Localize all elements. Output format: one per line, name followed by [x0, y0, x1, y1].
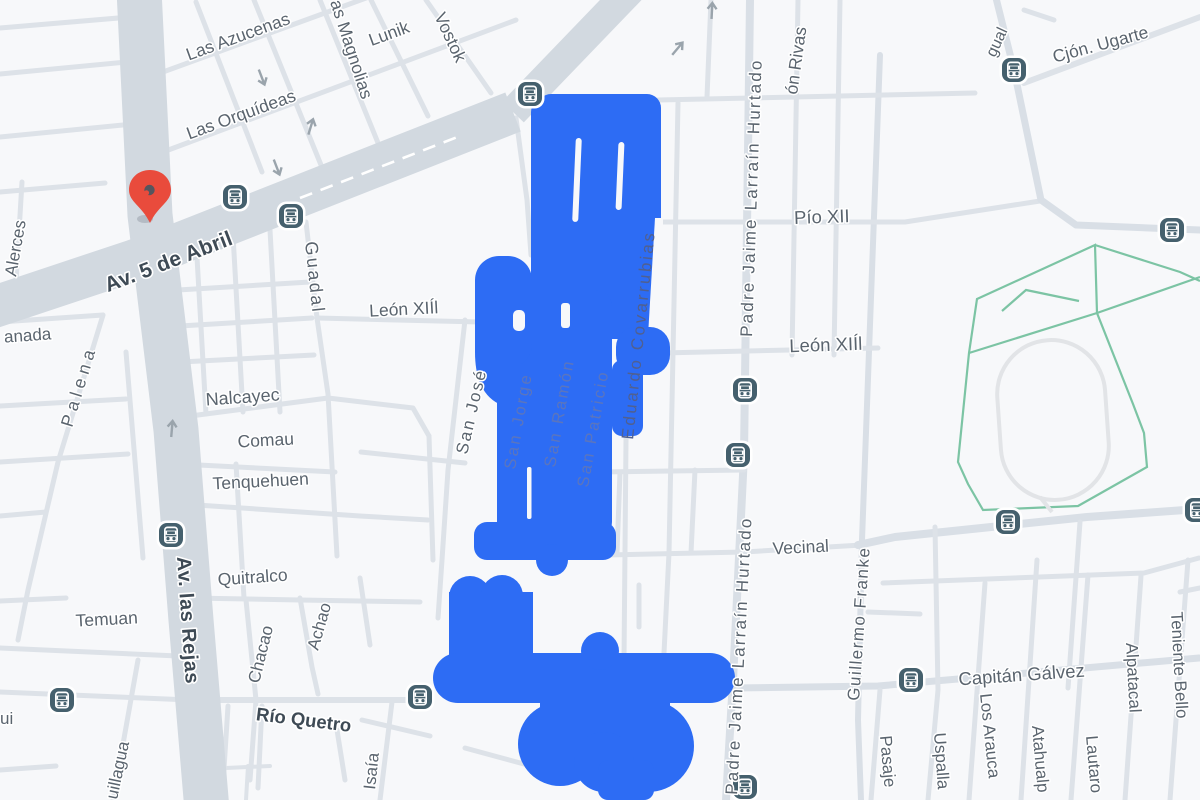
svg-text:Isaía: Isaía [360, 751, 383, 790]
svg-text:León XIÍl: León XIÍl [369, 297, 439, 321]
svg-text:Alpatacal: Alpatacal [1122, 642, 1145, 713]
svg-text:ui: ui [0, 709, 13, 728]
svg-text:Uspalla: Uspalla [930, 732, 953, 790]
svg-text:Temuan: Temuan [75, 607, 138, 630]
svg-text:Vecinal: Vecinal [772, 536, 829, 559]
svg-text:León XIÍl: León XIÍl [789, 333, 863, 357]
svg-text:Comau: Comau [237, 429, 294, 452]
svg-text:anada: anada [3, 324, 52, 346]
svg-text:Pío XII: Pío XII [794, 205, 850, 228]
